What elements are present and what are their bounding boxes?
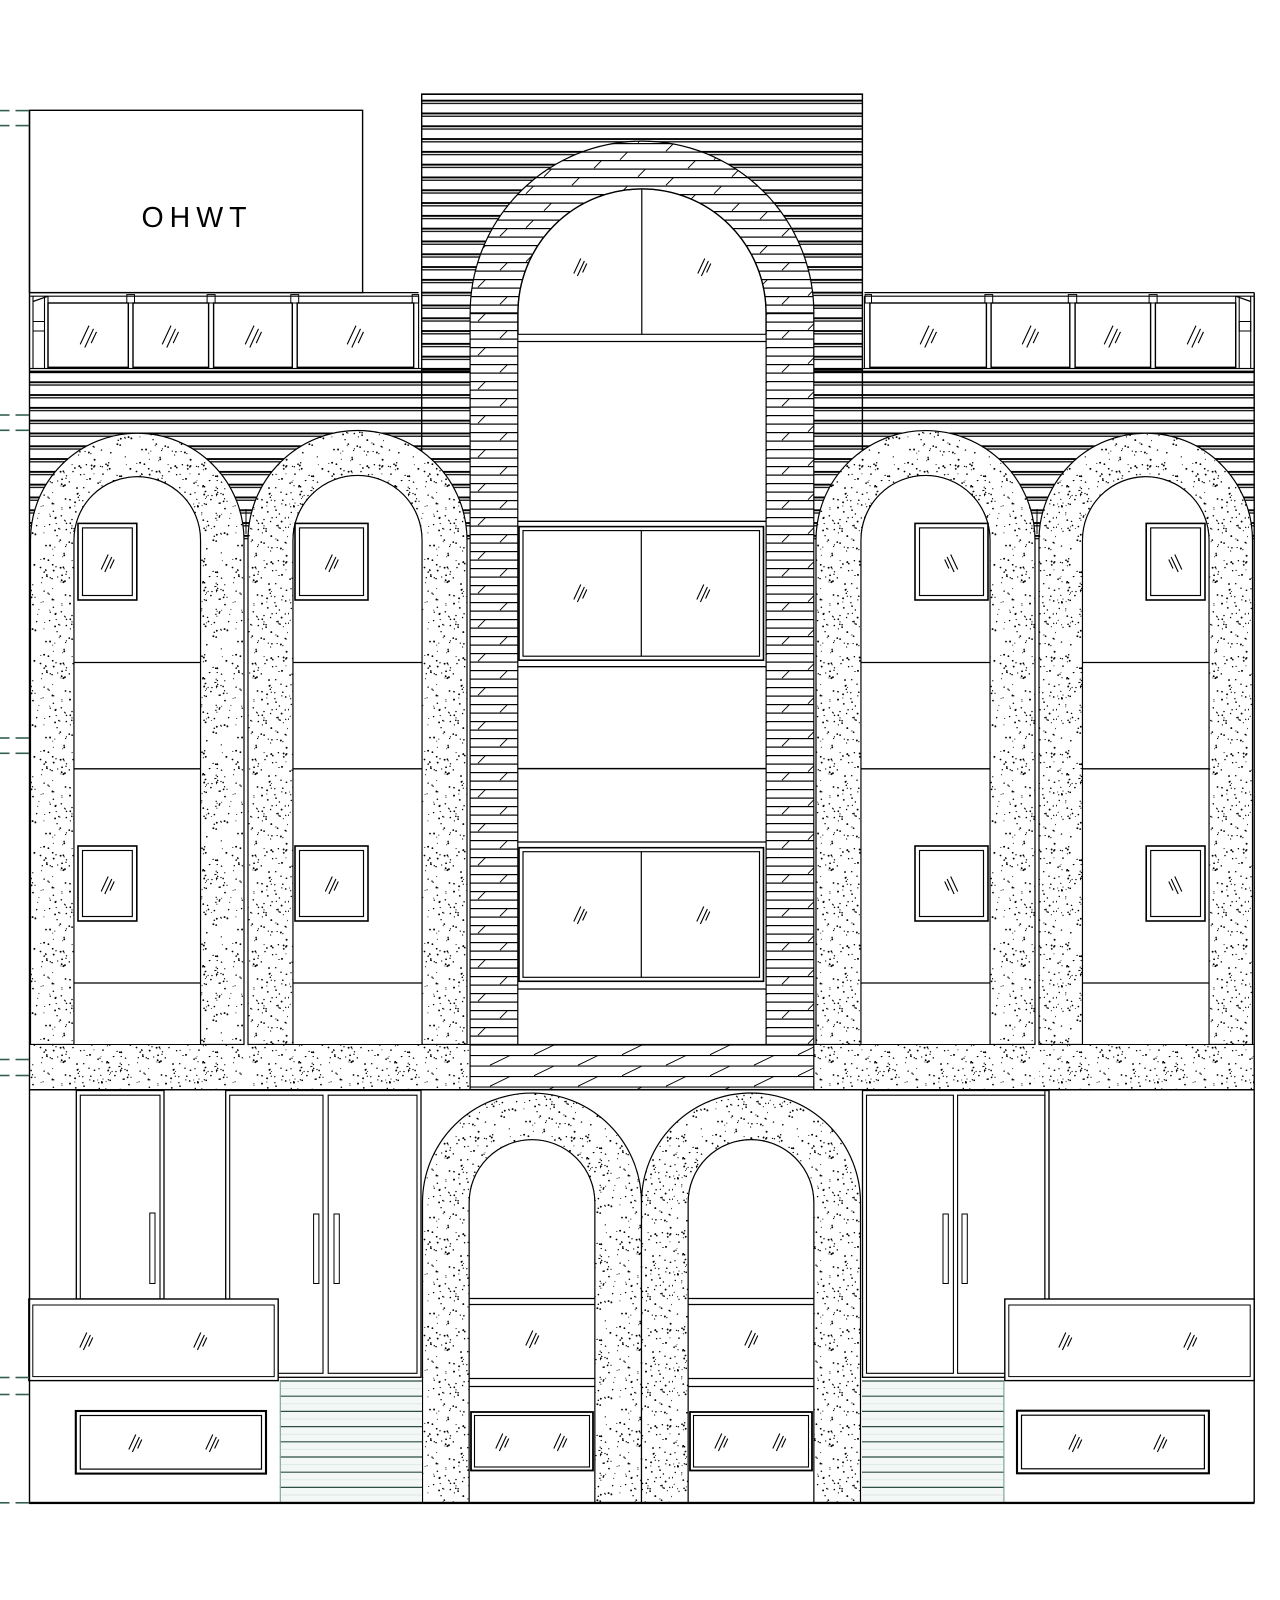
svg-text:OHWT: OHWT: [141, 202, 252, 234]
